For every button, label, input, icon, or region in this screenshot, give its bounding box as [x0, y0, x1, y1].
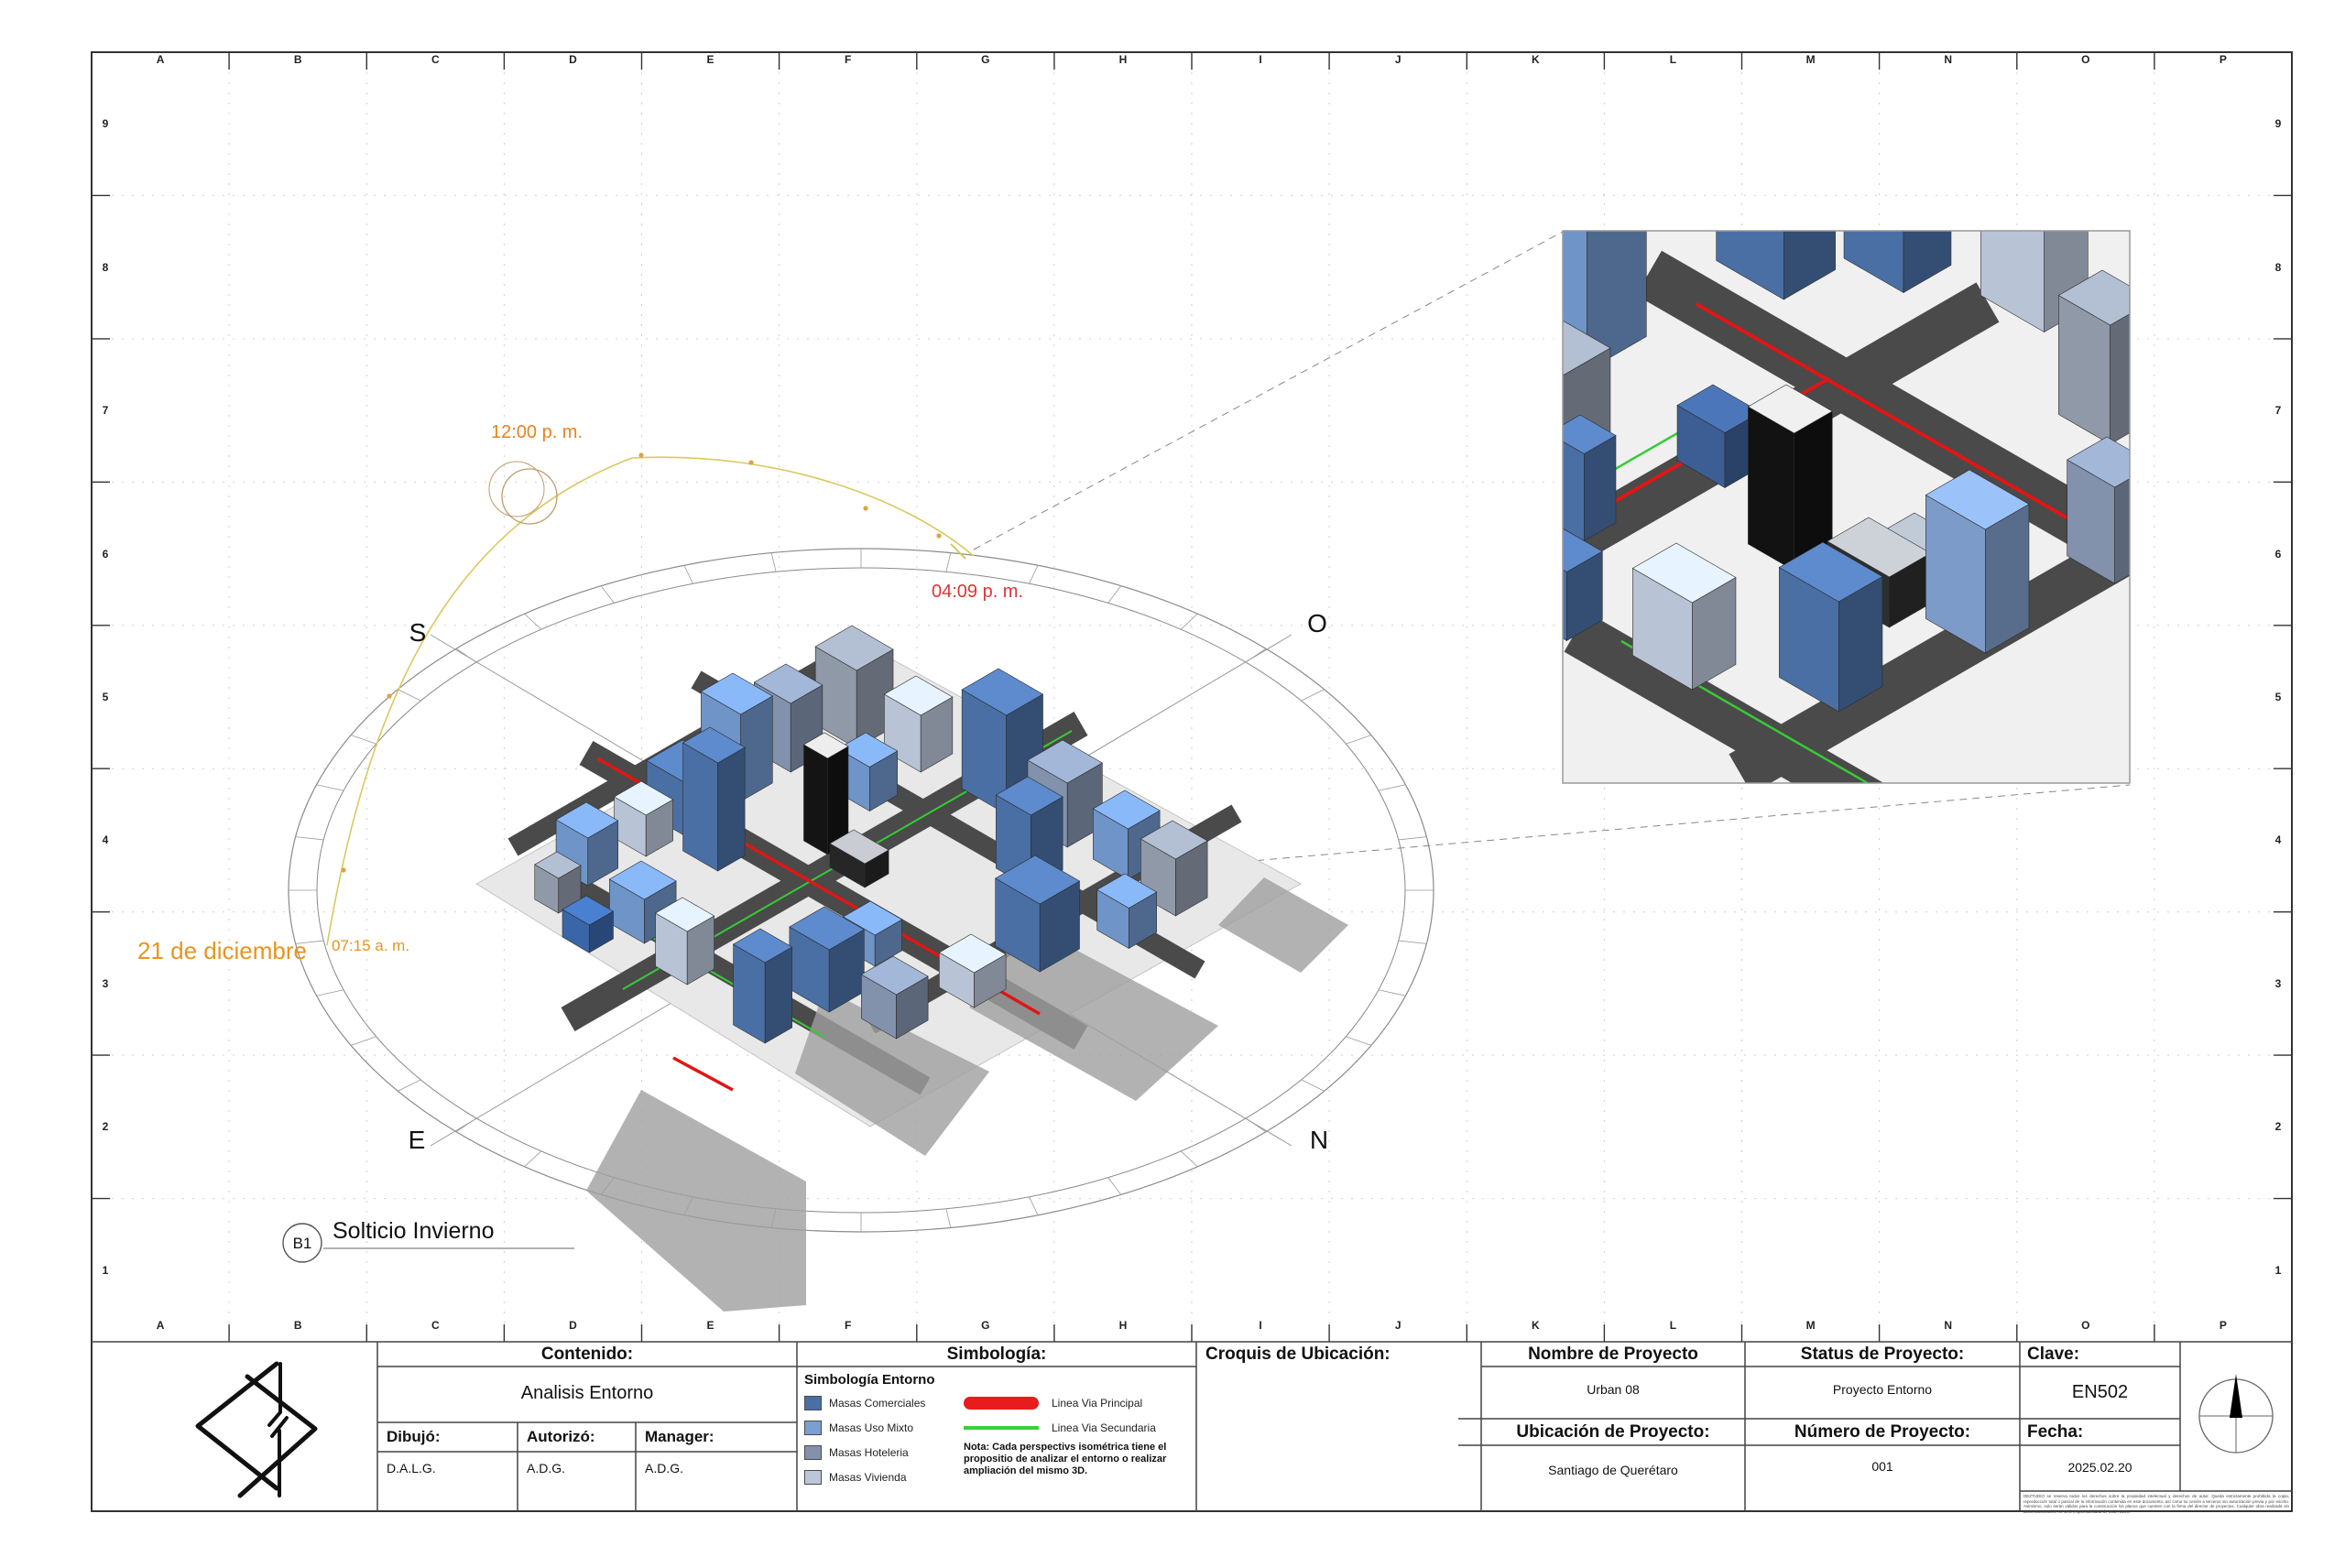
ruler-label: 3: [95, 912, 115, 1055]
building-mass: [1980, 133, 2088, 195]
ring-tick: [1108, 586, 1121, 604]
label-cardinal-o: O: [1307, 609, 1327, 637]
legend-masas: Masas ComercialesMasas Uso MixtoMasas Ho…: [804, 1390, 925, 1489]
ruler-label: M: [1742, 1319, 1880, 1339]
ruler-label: C: [366, 53, 504, 73]
ring-tick: [1399, 837, 1427, 840]
building-mass: [803, 745, 827, 855]
ring-tick: [1302, 690, 1325, 701]
legend-label: Masas Vivienda: [829, 1471, 907, 1484]
ruler-label: O: [2017, 53, 2154, 73]
detail-view: [1509, 128, 2154, 875]
via-principal-line: [673, 1058, 733, 1090]
contenido-value: Analisis Entorno: [377, 1370, 797, 1416]
legend-line-swatch: [964, 1426, 1039, 1430]
ruler-label: D: [504, 53, 641, 73]
contenido-header: Contenido:: [377, 1342, 797, 1367]
ring-tick: [1030, 565, 1039, 583]
legend-item: Masas Comerciales: [804, 1390, 925, 1415]
simbologia-subtitle: Simbología Entorno: [804, 1371, 1015, 1389]
numero-label: Número de Proyecto:: [1745, 1419, 2020, 1445]
manager-label: Manager:: [645, 1422, 791, 1452]
ring-tick: [351, 735, 376, 745]
sun-hour-marker: [936, 533, 941, 538]
ring-tick: [296, 837, 324, 840]
label-cardinal-e: E: [409, 1126, 426, 1154]
ruler-label: 2: [2268, 1055, 2288, 1198]
view-title: Solticio Invierno: [333, 1218, 494, 1244]
ring-tick: [1030, 1197, 1039, 1215]
fecha-label: Fecha:: [2027, 1419, 2174, 1445]
ruler-label: I: [1192, 53, 1329, 73]
ruler-label: K: [1467, 53, 1604, 73]
ring-tick: [684, 565, 693, 583]
nombre-proyecto-value: Urban 08: [1481, 1372, 1745, 1407]
building-mass: [1748, 407, 1794, 571]
legend-swatch: [804, 1470, 822, 1485]
dibujo-label: Dibujó:: [387, 1422, 513, 1452]
ring-tick: [317, 990, 344, 996]
ring-tick: [1379, 785, 1405, 790]
ring-tick: [1379, 990, 1405, 996]
legend-lineas: Linea Via PrincipalLinea Via Secundaria: [964, 1390, 1156, 1440]
ruler-label: L: [1604, 53, 1741, 73]
ruler-label: F: [780, 53, 917, 73]
sun-hour-marker: [341, 867, 345, 872]
sun-hour-marker: [748, 460, 753, 464]
ruler-label: I: [1192, 1319, 1329, 1339]
ruler-label: 1: [95, 1199, 115, 1342]
label-sunrise: 07:15 a. m.: [332, 937, 409, 954]
label-solstice-date: 21 de diciembre: [137, 937, 307, 964]
ruler-label: 6: [2268, 482, 2288, 625]
dibujo-value: D.A.L.G.: [387, 1454, 513, 1482]
ruler-right: 987654321: [2268, 52, 2288, 1342]
legend-swatch: [804, 1445, 822, 1460]
ruler-label: 3: [2268, 912, 2288, 1055]
legal-disclaimer: DEZTUDIO se reserva todos los derechos s…: [2023, 1494, 2289, 1514]
ruler-label: H: [1054, 53, 1192, 73]
ring-tick: [351, 1037, 376, 1046]
sun-icon: [489, 462, 544, 517]
company-logo: [198, 1364, 315, 1496]
ruler-label: 9: [2268, 52, 2288, 195]
ruler-label: F: [780, 1319, 917, 1339]
sun-hour-marker: [863, 506, 867, 510]
ring-tick: [771, 553, 776, 572]
legend-line-swatch: [964, 1397, 1039, 1410]
autorizo-label: Autorizó:: [527, 1422, 632, 1452]
label-sunset: 04:09 p. m.: [932, 582, 1023, 602]
building-shadow: [586, 1090, 806, 1312]
ruler-left: 987654321: [95, 52, 115, 1342]
building-mass: [683, 743, 718, 871]
sun-hour-marker: [638, 452, 643, 457]
ring-tick: [1399, 941, 1427, 943]
ring-tick: [1181, 1151, 1197, 1167]
north-compass: [2199, 1374, 2273, 1453]
ruler-label: 8: [95, 195, 115, 338]
ruler-label: E: [642, 1319, 780, 1339]
numero-value: 001: [1745, 1447, 2020, 1486]
ubicacion-value: Santiago de Querétaro: [1481, 1447, 1745, 1493]
ruler-label: N: [1880, 53, 2017, 73]
ruler-label: H: [1054, 1319, 1192, 1339]
ruler-label: E: [642, 53, 780, 73]
status-label: Status de Proyecto:: [1745, 1342, 2020, 1367]
ring-tick: [1346, 735, 1371, 745]
drawing-sheet: { "ruler": { "columns": ["A","B","C","D"…: [0, 0, 2345, 1563]
ruler-label: C: [366, 1319, 504, 1339]
ruler-label: 7: [95, 339, 115, 482]
ruler-label: J: [1329, 1319, 1467, 1339]
building-mass: [1509, 352, 1556, 485]
ring-tick: [398, 1080, 420, 1091]
building-mass: [1844, 128, 1951, 191]
building-mass: [1717, 144, 1836, 212]
ring-tick: [601, 586, 614, 604]
ruler-label: 6: [95, 482, 115, 625]
building-mass: [1527, 550, 1566, 641]
ruler-label: D: [504, 1319, 641, 1339]
label-cardinal-n: N: [1310, 1126, 1328, 1154]
legend-swatch: [804, 1421, 822, 1435]
ring-tick: [525, 614, 541, 629]
north-arrow-icon: [2230, 1374, 2242, 1418]
ring-tick: [946, 553, 951, 572]
legend-label: Linea Via Secundaria: [1052, 1421, 1156, 1434]
legend-item: Masas Uso Mixto: [804, 1415, 925, 1440]
sunset-tick: [951, 544, 965, 559]
autorizo-value: A.D.G.: [527, 1454, 632, 1482]
ruler-label: 1: [2268, 1199, 2288, 1342]
ruler-label: M: [1742, 53, 1880, 73]
ruler-label: 8: [2268, 195, 2288, 338]
ring-tick: [1346, 1037, 1371, 1046]
building-mass: [1511, 142, 1646, 220]
building-mass: [765, 947, 791, 1043]
sun-hour-marker: [387, 693, 391, 698]
ruler-label: G: [917, 1319, 1054, 1339]
ruler-label: B: [229, 1319, 366, 1339]
status-value: Proyecto Entorno: [1745, 1372, 2020, 1407]
croquis-header: Croquis de Ubicación:: [1205, 1342, 1476, 1367]
building-mass: [1985, 505, 2029, 654]
fecha-value: 2025.02.20: [2020, 1447, 2180, 1487]
ring-tick: [1302, 1080, 1325, 1091]
legend-label: Masas Comerciales: [829, 1397, 925, 1410]
ruler-label: 4: [2268, 768, 2288, 911]
legend-item: Linea Via Principal: [964, 1390, 1156, 1415]
legend-label: Masas Uso Mixto: [829, 1421, 913, 1434]
ruler-label: N: [1880, 1319, 2017, 1339]
manager-value: A.D.G.: [645, 1454, 791, 1482]
isometric-city-model: [476, 626, 1348, 1312]
ruler-top: ABCDEFGHIJKLMNOP: [92, 53, 2292, 73]
ruler-label: 5: [2268, 626, 2288, 768]
ruler-label: 4: [95, 768, 115, 911]
clave-value: EN502: [2020, 1368, 2180, 1417]
nombre-proyecto-label: Nombre de Proyecto: [1481, 1342, 1745, 1367]
legend-note: Nota: Cada perspectivs isométrica tiene …: [964, 1442, 1188, 1477]
label-cardinal-s: S: [409, 618, 427, 647]
ruler-label: G: [917, 53, 1054, 73]
legend-label: Linea Via Principal: [1052, 1397, 1142, 1410]
building-mass: [718, 747, 745, 871]
legend-item: Masas Vivienda: [804, 1465, 925, 1489]
ring-tick: [1108, 1178, 1121, 1195]
ring-tick: [525, 1151, 541, 1167]
legend-swatch: [804, 1396, 822, 1410]
simbologia-header: Simbología:: [797, 1342, 1196, 1367]
ruler-label: 9: [95, 52, 115, 195]
legend-item: Linea Via Secundaria: [964, 1415, 1156, 1440]
ring-tick: [1181, 614, 1197, 629]
ubicacion-label: Ubicación de Proyecto:: [1481, 1419, 1745, 1445]
ruler-label: J: [1329, 53, 1467, 73]
ring-tick: [946, 1209, 951, 1228]
ruler-bottom: ABCDEFGHIJKLMNOP: [92, 1319, 2292, 1339]
legend-item: Masas Hoteleria: [804, 1440, 925, 1465]
ruler-label: 7: [2268, 339, 2288, 482]
clave-label: Clave:: [2027, 1342, 2174, 1367]
ruler-label: L: [1604, 1319, 1741, 1339]
ruler-label: O: [2017, 1319, 2154, 1339]
ruler-label: 5: [95, 626, 115, 768]
ring-tick: [317, 785, 344, 790]
callout-leader: [974, 232, 1563, 550]
label-noon: 12:00 p. m.: [491, 422, 583, 442]
ruler-label: 2: [95, 1055, 115, 1198]
view-callout-id: B1: [293, 1235, 312, 1252]
ruler-label: K: [1467, 1319, 1604, 1339]
ruler-label: B: [229, 53, 366, 73]
ring-tick: [398, 690, 420, 701]
legend-label: Masas Hoteleria: [829, 1446, 909, 1459]
